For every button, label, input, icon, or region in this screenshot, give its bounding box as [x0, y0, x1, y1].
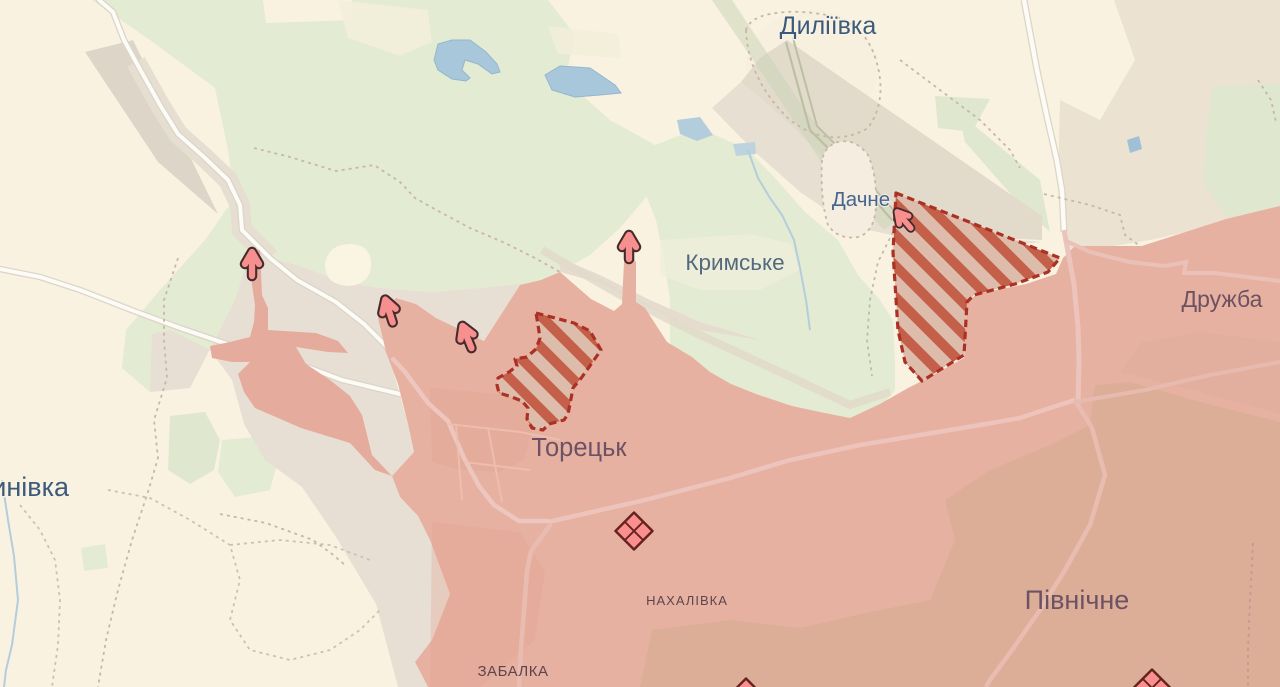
- svg-text:ЗАБАЛКА: ЗАБАЛКА: [478, 663, 549, 680]
- svg-text:Північне: Північне: [1025, 585, 1130, 615]
- svg-text:Дружба: Дружба: [1182, 286, 1263, 312]
- svg-text:Дачне: Дачне: [832, 188, 890, 211]
- svg-text:Кримське: Кримське: [685, 250, 784, 275]
- svg-text:Диліївка: Диліївка: [780, 12, 877, 40]
- svg-text:НАХАЛІВКА: НАХАЛІВКА: [646, 593, 728, 608]
- svg-text:Щербинівка: Щербинівка: [0, 472, 70, 502]
- svg-text:Торецьк: Торецьк: [531, 434, 627, 462]
